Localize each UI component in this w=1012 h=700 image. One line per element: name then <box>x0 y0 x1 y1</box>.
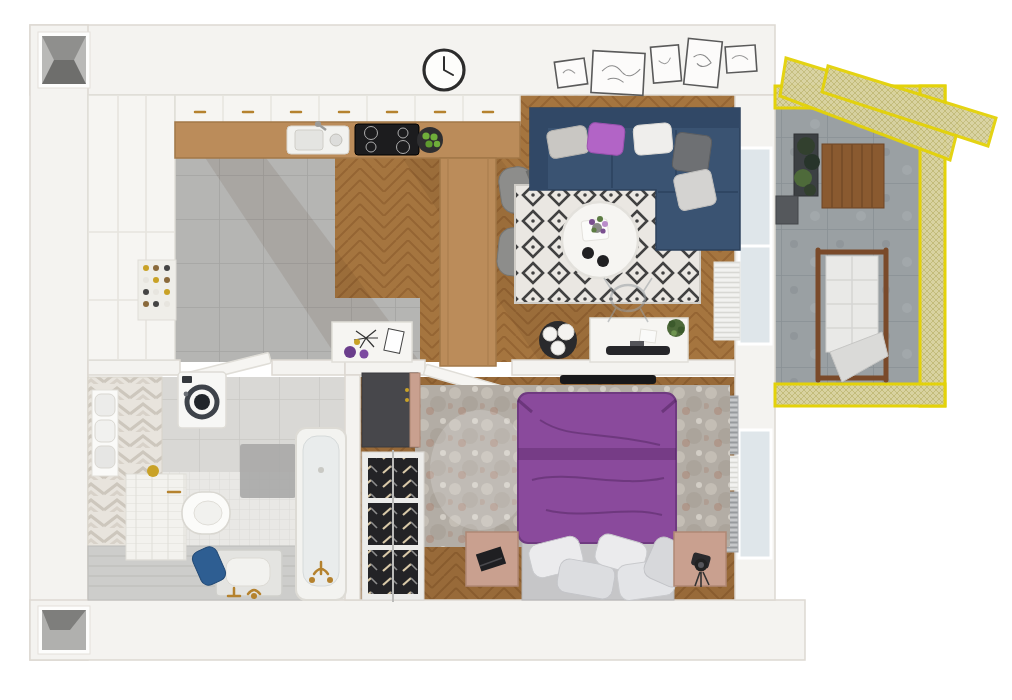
washer-panel <box>182 376 192 383</box>
floor-plan-svg <box>0 0 1012 700</box>
wall-clock <box>424 50 464 90</box>
tall-cabinet-column <box>88 95 176 360</box>
wall-bottom <box>30 600 805 660</box>
duct-shaft-bottom-left <box>38 606 90 654</box>
sofa-cushion-light <box>673 168 718 211</box>
partition-hall-bathroom-left <box>88 360 180 375</box>
purple-sphere-2 <box>360 350 369 359</box>
bedroom <box>362 373 730 602</box>
sphere-lamp-table <box>539 321 577 359</box>
duvet-fold <box>518 448 676 460</box>
sofa-cushion-purple <box>587 122 626 156</box>
breakfast-bar <box>440 158 496 366</box>
desk-plant <box>667 319 685 337</box>
kitchen-sink <box>287 121 349 154</box>
pantry-shelf-with-jars <box>138 260 176 320</box>
planter-with-plants <box>794 134 820 196</box>
bed-duvet <box>518 393 676 543</box>
towel-niche <box>92 390 118 476</box>
espresso-cup-2 <box>597 255 609 267</box>
desk-monitor <box>606 346 670 355</box>
sofa-cushion-graphite <box>672 132 713 175</box>
toilet-tiled-block <box>126 474 186 560</box>
floor-plan-render <box>0 0 1012 700</box>
washing-machine <box>178 372 226 428</box>
deck-table <box>822 144 884 208</box>
picture-frame-1 <box>554 58 587 88</box>
bath-mat <box>240 444 296 498</box>
shoe-rack <box>362 450 424 602</box>
desk-papers <box>639 329 657 343</box>
tub-drain <box>318 467 324 473</box>
picture-frame-4 <box>684 38 723 87</box>
tv-wall-mounted <box>560 375 656 384</box>
picture-frame-3 <box>650 45 681 83</box>
console-sideboard <box>332 322 412 362</box>
espresso-cup-1 <box>582 247 594 259</box>
rug-highlight <box>430 410 530 530</box>
storage-box <box>776 196 798 224</box>
duct-shaft-top-left <box>38 32 90 88</box>
curtain-living <box>714 262 740 340</box>
double-bed <box>518 393 695 602</box>
gold-cup <box>147 465 159 477</box>
bathtub <box>296 428 346 600</box>
picture-frame-2 <box>591 51 645 96</box>
sofa-armrest <box>530 108 548 190</box>
sofa-cushion-white <box>633 122 673 155</box>
purple-sphere-1 <box>344 346 356 358</box>
wall-left <box>30 25 88 660</box>
nightstand-right <box>674 532 726 587</box>
monitor-stand <box>630 341 644 346</box>
induction-hob <box>355 124 419 155</box>
kitchen-counter <box>175 121 520 158</box>
wardrobe <box>362 373 420 447</box>
fruit-bowl <box>417 127 443 153</box>
gold-ball <box>354 339 360 345</box>
partition-bathroom-bedroom <box>345 375 360 600</box>
bedroom-window <box>739 430 771 558</box>
picture-frame-5 <box>725 45 757 73</box>
coffee-table <box>562 202 638 278</box>
balcony-fence-bottom <box>775 384 945 406</box>
kitchen-upper-cabinets <box>175 95 520 125</box>
nightstand-left <box>466 532 518 586</box>
